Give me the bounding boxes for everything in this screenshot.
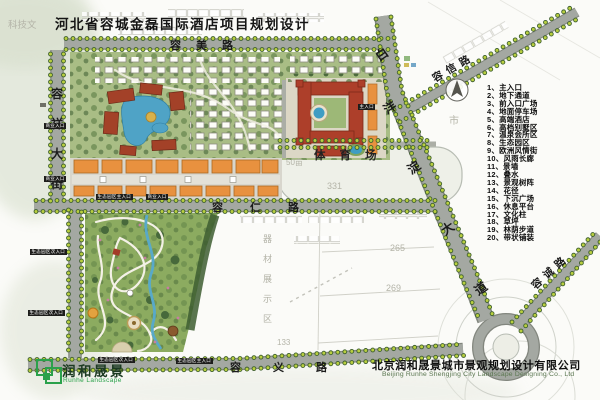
entrance-chip-biz-3: 商业入口 <box>146 194 168 200</box>
plan-title: 河北省容城金磊国际酒店项目规划设计 <box>55 13 310 33</box>
entrance-chip-biz-2: 商业入口 <box>44 176 66 182</box>
entrance-chip-eco-main-2: 生态园区主入口 <box>176 358 213 364</box>
stadium-label: 体育场 <box>314 147 391 163</box>
entrance-chip-eco-main-1: 生态园区主入口 <box>96 194 133 200</box>
entrance-chip-eco-sub-1: 生态园区次入口 <box>30 249 67 255</box>
compass-icon <box>446 79 468 101</box>
logo-name-en: Runhe Landscape <box>63 377 122 384</box>
road-label-rongren: 容仁路 <box>212 199 326 215</box>
faint-text-shi: 市 <box>449 112 459 127</box>
legend: 1、主入口 2、地下通道 3、前入口广场 4、地面停车场 5、高端酒店 6、高档… <box>487 84 538 242</box>
faint-number-331: 331 <box>327 181 342 191</box>
entrance-chip-eco-sub-2: 生态园区次入口 <box>28 310 65 316</box>
entrance-chip-main: 主入口 <box>358 104 375 110</box>
faint-number-269: 269 <box>386 283 401 293</box>
logo-square-fill <box>43 373 50 380</box>
faint-number-265: 265 <box>390 243 405 253</box>
faint-text-keji: 科技文 <box>8 17 37 31</box>
faint-text-50mu: 50亩 <box>286 157 303 168</box>
road-label-rongmei: 容美路 <box>170 37 248 53</box>
road-label-rongyi: 容义路 <box>230 359 359 375</box>
master-plan-canvas: 河北省容城金磊国际酒店项目规划设计 科技文 市 50亩 331 265 269 … <box>0 0 600 400</box>
faint-vertical-text: 器 材 展 示 区 <box>263 232 272 325</box>
legend-item: 20、带状铺装 <box>487 234 538 242</box>
entrance-chip-biz-1: 商业入口 <box>44 123 66 129</box>
company-name-en: Beijing Runhe Shengjing City Landscape D… <box>382 371 574 378</box>
faint-number-133: 133 <box>277 338 290 347</box>
